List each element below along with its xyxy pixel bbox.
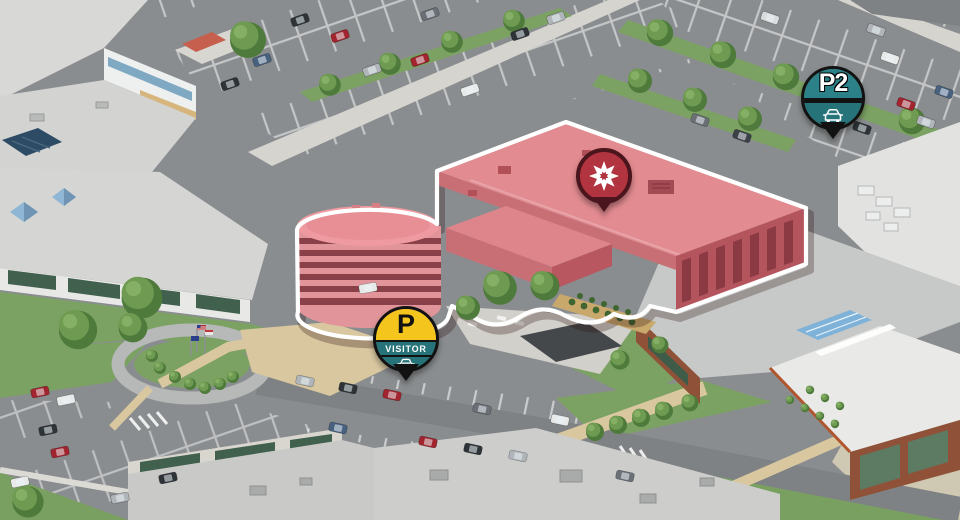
destination-pin-bubble xyxy=(576,148,632,204)
visitor-pin-bubble: P VISITOR xyxy=(373,306,439,372)
parking-pin-visitor[interactable]: P VISITOR xyxy=(373,306,439,381)
campus-wayfinding-map: P2 P VISITOR xyxy=(0,0,960,520)
destination-pin-tail xyxy=(593,197,615,212)
visitor-pin-p-label: P xyxy=(397,309,415,340)
p2-pin-bubble: P2 xyxy=(801,66,865,130)
car-icon xyxy=(822,107,844,123)
parking-pin-p2[interactable]: P2 xyxy=(801,66,865,139)
p2-pin-label: P2 xyxy=(819,69,848,98)
p2-pin-tail xyxy=(820,122,846,139)
visitor-pin-tail xyxy=(393,364,419,381)
flower-logo-icon xyxy=(587,159,621,193)
visitor-pin-label: VISITOR xyxy=(385,344,426,354)
destination-pin[interactable] xyxy=(576,148,632,212)
